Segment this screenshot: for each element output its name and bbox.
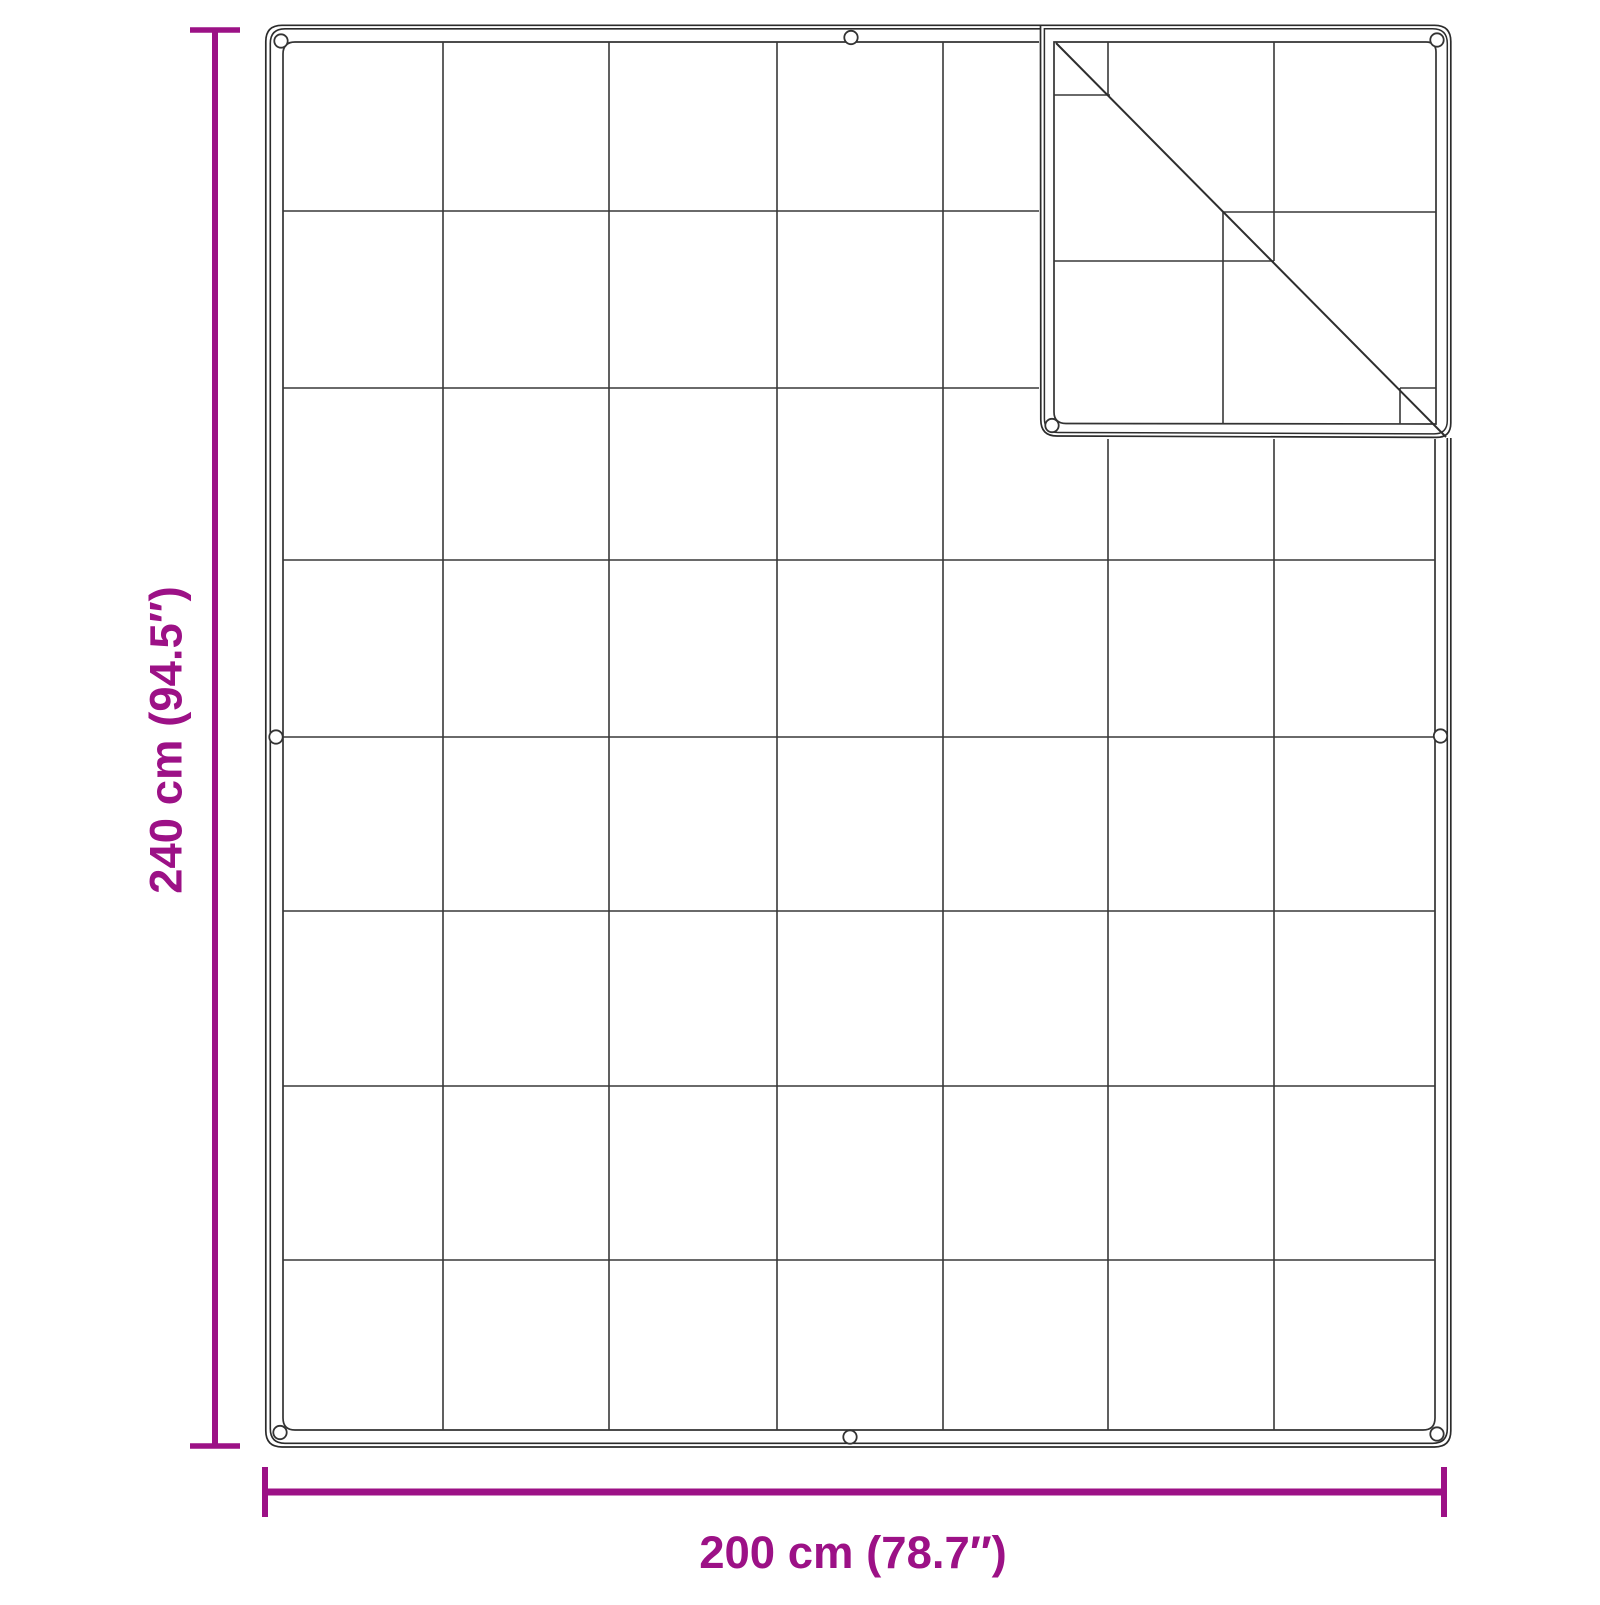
- svg-text:240 cm (94.5″): 240 cm (94.5″): [141, 586, 192, 894]
- svg-text:200 cm (78.7″): 200 cm (78.7″): [699, 1527, 1007, 1578]
